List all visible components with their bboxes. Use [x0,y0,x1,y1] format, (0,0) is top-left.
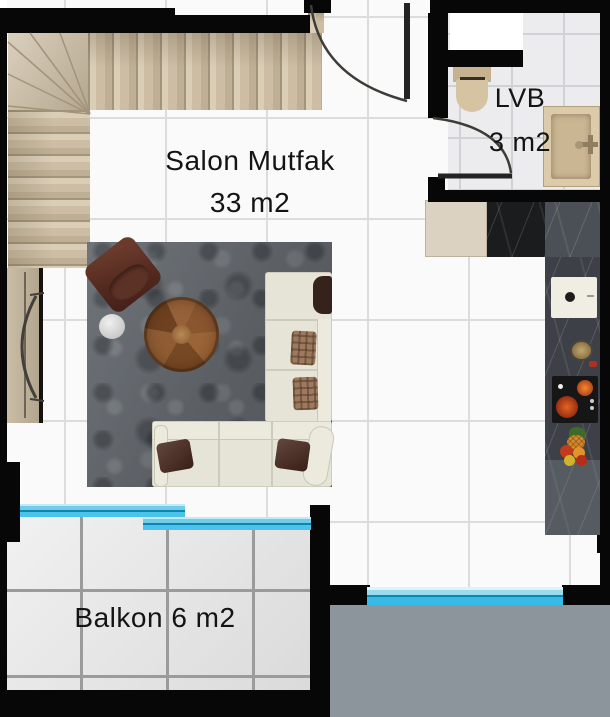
wall-lvb-bottom [443,190,610,202]
sofa-headrest-cushion [313,276,332,314]
salon-area: 33 m2 [120,182,380,224]
wall-window-pier-right [562,585,610,605]
balkon-name: Balkon 6 m2 [40,602,270,634]
staircase-winder [8,33,88,110]
salon-label: Salon Mutfak 33 m2 [120,140,380,224]
floor-plan: Salon Mutfak 33 m2 LVB 3 m2 Balkon 6 m2 [0,0,610,717]
fruit [564,455,575,466]
coffee-table-center [172,325,191,344]
faucet-icon [588,135,593,154]
lower-balcony-floor [328,604,610,717]
sofa-backrest [153,422,331,440]
wall-bottom [0,690,330,717]
console [7,268,43,423]
balcony-window-panel [20,504,185,517]
side-table [99,314,125,339]
decor-plate [570,340,593,361]
red-utensil [589,361,597,367]
staircase-left-flight [8,110,90,268]
sofa-backrest [317,319,331,423]
wall-counter-end [597,535,610,553]
stove-burner [577,380,593,396]
staircase-upper-flight-patch [308,13,324,33]
fridge [425,200,487,257]
lvb-area: 3 m2 [458,120,582,164]
door-frame-block [304,0,331,13]
sink-faucet [587,295,594,297]
duct-niche [450,13,523,50]
stove-knob [590,406,594,410]
wall-top-mid [173,15,310,33]
staircase-upper-flight [88,33,322,110]
stove-knob [590,399,594,403]
stove-knob [558,384,563,389]
kitchen-sink [551,277,597,318]
brown-pillow [274,438,311,472]
wall-niche-bottom [448,50,523,67]
wall-window-pier-left [328,585,370,605]
lvb-label: LVB 3 m2 [458,76,582,164]
wall-left [0,8,7,717]
stove [552,376,598,423]
wall-top-left [0,8,175,33]
lower-balcony-window [367,587,563,605]
sofa-cushion-seam [271,422,273,486]
stove-burner [556,396,578,418]
balcony-window-panel [143,517,311,530]
sink-drain [565,292,575,302]
wall-left-pier [5,462,20,542]
lvb-name: LVB [458,76,582,120]
brown-pillow [156,438,195,473]
wall-top-right [430,0,610,13]
plaid-pillow [290,330,317,365]
kitchen-counter-top-dark [487,200,545,257]
sofa-cushion-seam [218,422,220,486]
salon-name: Salon Mutfak [120,140,380,182]
fruit [576,455,587,466]
plaid-pillow [292,377,318,411]
kitchen-counter-lower [545,460,602,535]
kitchen-counter-top [545,200,602,257]
wall-lvb-left [428,13,448,118]
wall-right [600,0,610,587]
wall-mid-vertical [310,505,330,717]
balkon-label: Balkon 6 m2 [40,602,270,634]
